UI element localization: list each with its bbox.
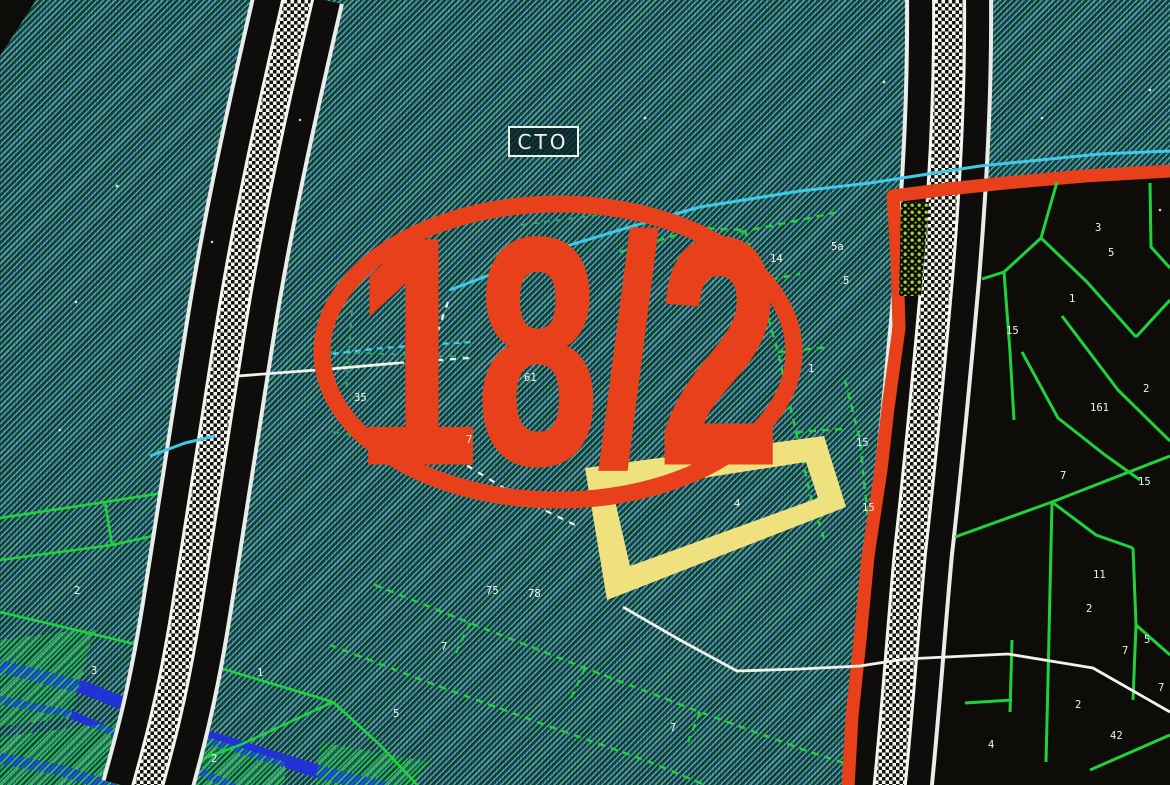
parcel-number-label: 2 [211,753,217,765]
parcel-number-label: 4 [734,498,740,510]
parcel-number-label: 7 [670,722,676,734]
parcel-number-label: 2 [1143,383,1149,395]
parcel-number-label: 2 [74,585,80,597]
parcel-number-label: 15 [1138,476,1151,488]
parcel-number-label: 5 [843,275,849,287]
parcel-number-label: 35 [354,392,367,404]
parcel-number-label: 78 [528,588,541,600]
parcel-callout: 18/2 [322,172,794,530]
parcel-number-label: 7 [1158,682,1164,694]
parcel-number-label: 161 [1090,402,1109,414]
parcel-number-label: 1 [1069,293,1075,305]
screen-corner-shadow [0,0,36,56]
parcel-number-label: 75 [486,585,499,597]
parcel-number-label: 7 [1122,645,1128,657]
road-left [146,0,299,785]
parcel-number-label: 5 [1144,634,1150,646]
station-label-text: СТО [518,130,569,154]
parcel-number-label: 15 [856,437,869,449]
parcel-number-label: 14 [770,253,783,265]
parcel-number-label: 15 [1006,325,1019,337]
parcel-number-label: 15 [862,502,875,514]
parcel-number-label: 1 [257,667,263,679]
parcel-number-label: 2 [1075,699,1081,711]
parcel-number-label: 5 [393,708,399,720]
parcel-number-label: 61 [524,372,537,384]
parcel-number-label: 7 [1060,470,1066,482]
parcel-number-label: 5 [1108,247,1114,259]
cad-map-drawing: 18/2 СТО 145а516135715154757875712323511… [0,0,1170,785]
parcel-callout-text: 18/2 [356,172,780,530]
road-right [889,0,949,785]
parcel-number-label: 4 [988,739,994,751]
parcel-number-label: 7 [466,434,472,446]
map-canvas[interactable]: 18/2 СТО 145а516135715154757875712323511… [0,0,1170,785]
parcel-number-label: 7 [441,641,447,653]
parcel-number-label: 1 [808,363,814,375]
parcel-number-label: 3 [1095,222,1101,234]
parcel-number-label: 42 [1110,730,1123,742]
station-label-group: СТО [509,127,578,156]
parcel-number-label: 2 [1086,603,1092,615]
parcel-number-label: 11 [1093,569,1106,581]
parcel-number-label: 5а [831,241,844,253]
parcel-number-label: 3 [91,665,97,677]
